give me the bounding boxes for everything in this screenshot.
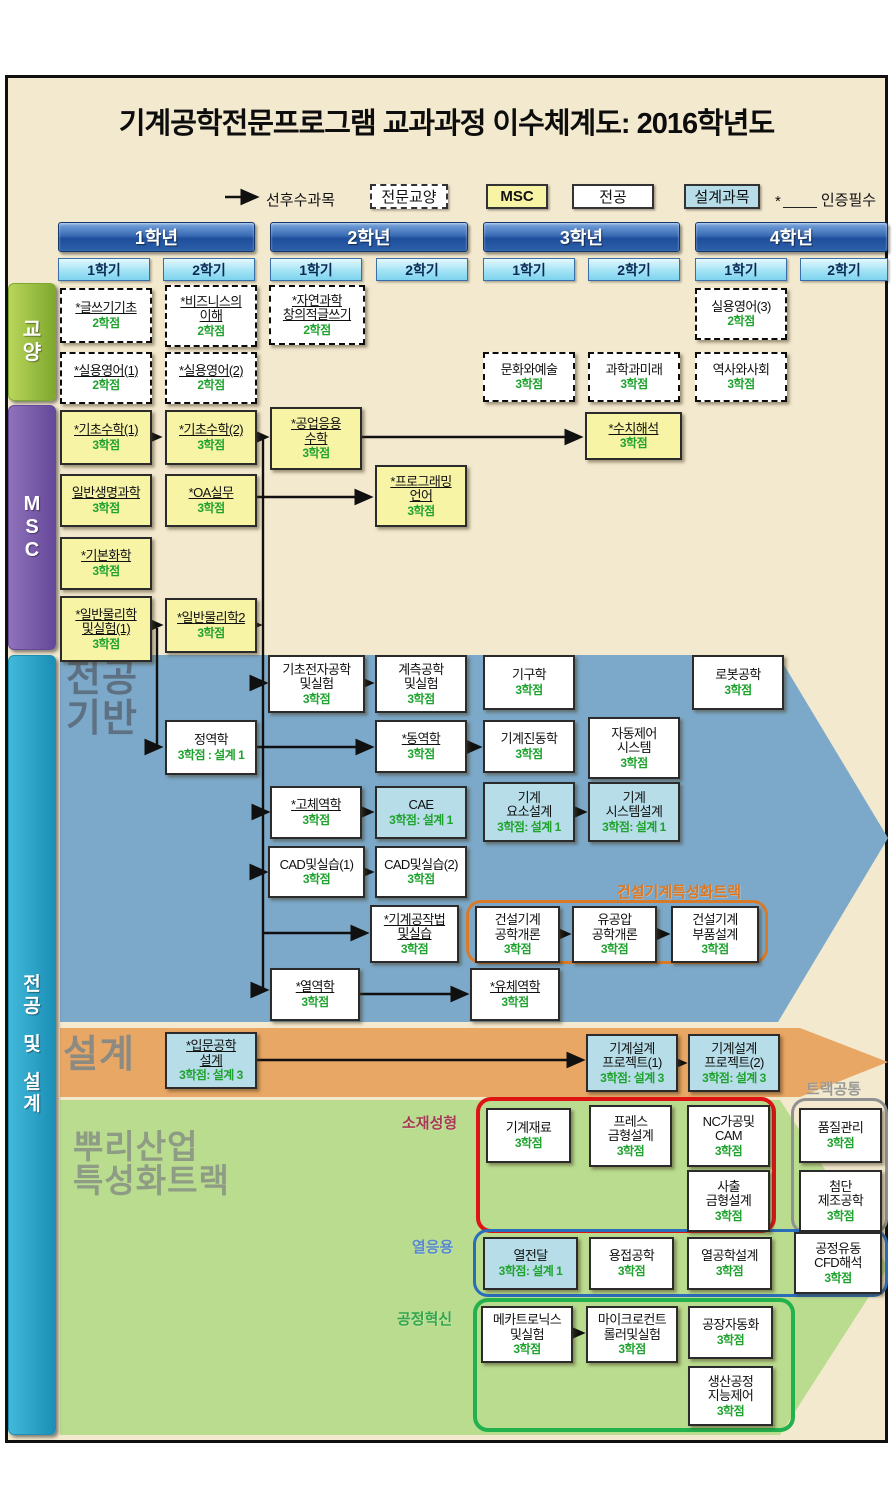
course-credit: 3학점 [620,378,647,391]
course-box: *일반물리학23학점 [165,598,257,653]
sidebar-char: 전 [23,974,40,996]
course-credit: 3학점: 설계 1 [499,1265,563,1278]
course-box: 문화와예술3학점 [483,352,575,402]
course-box: *비즈니스의 이해2학점 [165,285,257,347]
star-symbol: * [775,193,781,210]
course-credit: 3학점 [92,565,119,578]
course-title: 역사와사회 [713,363,770,378]
course-credit: 3학점 [701,943,728,956]
course-box: 기구학3학점 [483,655,575,710]
course-title: *기계공작법 및실습 [384,913,445,942]
course-box: *고체역학3학점 [270,786,362,839]
legend-required: *인증필수 [775,189,876,210]
course-credit: 3학점 [303,693,330,706]
track-label: 열응용 [412,1236,453,1257]
course-credit: 3학점 [620,437,647,450]
course-title: 용접공학 [609,1249,654,1264]
course-credit: 2학점 [197,379,224,392]
course-box: 건설기계 공학개론3학점 [475,906,560,963]
course-title: 일반생명과학 [72,486,140,501]
course-credit: 2학점 [197,325,224,338]
course-credit: 3학점 [515,378,542,391]
course-box: 공장자동화3학점 [688,1306,773,1359]
course-box: *기계공작법 및실습3학점 [370,905,459,963]
course-title: *공업응용 수학 [291,417,341,446]
course-title: *수치해석 [609,422,659,437]
course-box: 기계 요소설계3학점: 설계 1 [483,782,575,842]
course-title: 로봇공학 [715,668,760,683]
legend-box-design: 설계과목 [684,184,760,209]
course-credit: 3학점 [724,684,751,697]
course-box: 마이크로컨트 롤러및실험3학점 [586,1306,678,1363]
course-title: 품질관리 [818,1121,863,1136]
course-title: 유공압 공학개론 [592,913,637,942]
course-title: 공정유동 CFD해석 [814,1242,862,1271]
track-label: 공정혁신 [397,1308,452,1329]
course-credit: 3학점 [197,627,224,640]
course-credit: 3학점 [407,693,434,706]
course-credit: 2학점 [727,315,754,328]
course-title: 과학과미래 [606,363,663,378]
semester-header: 2학기 [163,258,255,281]
course-box: 유공압 공학개론3학점 [572,906,657,963]
course-box: *동역학3학점 [375,720,467,773]
course-credit: 3학점 [601,943,628,956]
course-credit: 3학점: 설계 3 [179,1069,243,1082]
course-title: CAD및실습(1) [280,858,354,873]
course-title: *자연과학 창의적글쓰기 [283,294,351,323]
course-box: 첨단 제조공학3학점 [799,1170,882,1232]
sidebar-char: M [24,493,41,516]
underline-mark [783,194,817,208]
course-box: 프레스 금형설계3학점 [589,1105,672,1167]
course-title: CAD및실습(2) [384,858,458,873]
year-header-3: 3학년 [483,222,680,252]
course-box: *일반물리학 및실험(1)3학점 [60,596,152,662]
course-title: *유체역학 [490,980,540,995]
course-credit: 3학점: 설계 1 [389,814,453,827]
semester-header: 2학기 [588,258,680,281]
course-box: 생산공정 지능제어3학점 [688,1366,773,1426]
course-box: 용접공학3학점 [589,1237,674,1290]
course-box: *공업응용 수학3학점 [270,407,362,470]
course-credit: 3학점 [515,684,542,697]
course-title: *프로그래밍 언어 [390,475,451,504]
course-box: 자동제어 시스템3학점 [588,717,680,779]
course-box: *프로그래밍 언어3학점 [375,465,467,527]
course-box: CAD및실습(2)3학점 [375,846,467,898]
course-title: NC가공및 CAM [703,1115,755,1144]
course-box: 메카트로닉스 및실험3학점 [481,1306,573,1363]
sidebar-char: S [25,516,38,539]
track-label: 트랙공통 [806,1078,861,1099]
course-credit: 3학점 [407,873,434,886]
semester-header: 1학기 [270,258,362,281]
course-credit: 3학점 [92,502,119,515]
semester-header: 1학기 [695,258,787,281]
course-title: 기계 요소설계 [506,791,551,820]
course-credit: 3학점 [515,1137,542,1150]
course-title: 첨단 제조공학 [818,1180,863,1209]
sidebar-char: 설 [23,1072,40,1094]
course-credit: 3학점: 설계 1 [497,821,561,834]
year-header-1: 1학년 [58,222,255,252]
legend-arrow-label: 선후수과목 [266,189,335,210]
course-credit: 3학점 [407,748,434,761]
course-title: *기초수학(1) [74,423,138,438]
course-credit: 3학점 [620,757,647,770]
course-credit: 3학점 [401,943,428,956]
track-label: 소재성형 [402,1112,457,1133]
course-box: *수치해석3학점 [585,412,682,460]
course-title: 생산공정 지능제어 [708,1375,753,1404]
course-box: *유체역학3학점 [470,968,560,1021]
course-title: 메카트로닉스 및실험 [493,1313,561,1342]
course-title: 기계설계 프로젝트(1) [602,1042,662,1071]
course-title: 열공학설계 [701,1249,758,1264]
course-credit: 3학점 [824,1272,851,1285]
course-title: 문화와예술 [501,363,558,378]
course-box: 공정유동 CFD해석3학점 [794,1232,882,1294]
track-label: 건설기계특성화트랙 [617,881,741,902]
course-credit: 3학점: 설계 1 [602,821,666,834]
course-credit: 3학점 [501,996,528,1009]
sidebar-ge: 교양 [8,283,56,401]
course-credit: 3학점 [513,1343,540,1356]
course-title: 실용영어(3) [711,300,771,315]
course-title: 기계 시스템설계 [606,791,663,820]
course-box: *실용영어(1)2학점 [60,352,152,404]
course-box: 로봇공학3학점 [692,655,784,710]
course-title: *실용영어(2) [179,364,243,379]
sidebar-char: 공 [23,996,40,1018]
course-title: 기초전자공학 및실험 [282,663,350,692]
course-title: 건설기계 부품설계 [692,913,737,942]
course-credit: 3학점 : 설계 1 [178,749,245,762]
course-title: 사출 금형설계 [706,1180,751,1209]
course-box: 역사와사회3학점 [695,352,787,402]
course-box: 품질관리3학점 [799,1108,882,1163]
course-title: *동역학 [402,732,441,747]
course-credit: 3학점 [618,1343,645,1356]
course-box: *자연과학 창의적글쓰기2학점 [269,285,365,345]
course-box: 기계 시스템설계3학점: 설계 1 [588,782,680,842]
course-title: 공장자동화 [702,1318,759,1333]
course-credit: 3학점 [504,943,531,956]
course-box: 기계설계 프로젝트(2)3학점: 설계 3 [688,1034,780,1092]
course-credit: 3학점 [827,1137,854,1150]
course-box: CAD및실습(1)3학점 [268,846,365,898]
course-credit: 3학점 [715,1210,742,1223]
course-title: *입문공학 설계 [186,1039,236,1068]
course-credit: 3학점 [715,1145,742,1158]
course-title: *OA실무 [189,486,234,501]
course-title: 기계설계 프로젝트(2) [704,1042,764,1071]
course-box: *글쓰기기초2학점 [60,288,152,343]
course-box: *기본화학3학점 [60,537,152,590]
sidebar-char: C [25,539,39,562]
course-title: 기구학 [512,668,546,683]
course-credit: 3학점: 설계 3 [702,1072,766,1085]
course-title: 정역학 [194,733,228,748]
course-box: 기계재료3학점 [486,1108,571,1163]
course-box: 사출 금형설계3학점 [687,1170,770,1232]
course-box: *OA실무3학점 [165,474,257,527]
course-credit: 3학점 [407,505,434,518]
course-credit: 3학점 [618,1265,645,1278]
sidebar-char: 계 [23,1094,40,1116]
semester-header: 1학기 [483,258,575,281]
course-credit: 3학점: 설계 3 [600,1072,664,1085]
required-label: 인증필수 [821,189,876,210]
course-title: *기초수학(2) [179,423,243,438]
course-title: 기계재료 [506,1121,551,1136]
sidebar-char: 및 [23,1034,40,1056]
course-title: *글쓰기기초 [75,301,136,316]
course-title: 열전달 [513,1249,547,1264]
course-title: 기계진동학 [501,732,558,747]
legend-box-ge: 전문교양 [370,184,448,209]
course-box: *기초수학(1)3학점 [60,410,152,465]
course-box: 과학과미래3학점 [588,352,680,402]
course-credit: 3학점 [617,1145,644,1158]
course-title: *고체역학 [291,798,341,813]
course-credit: 2학점 [92,379,119,392]
course-box: 계측공학 및실험3학점 [375,655,467,713]
curriculum-diagram: 기계공학전문프로그램 교과과정 이수체계도: 2016학년도 선후수과목 전문교… [0,0,893,1512]
course-box: *열역학3학점 [270,968,360,1021]
course-box: *기초수학(2)3학점 [165,410,257,465]
course-credit: 3학점 [92,638,119,651]
course-credit: 2학점 [303,324,330,337]
course-box: 건설기계 부품설계3학점 [671,906,759,963]
course-credit: 3학점 [717,1334,744,1347]
course-credit: 3학점 [301,996,328,1009]
sidebar-char: 양 [23,342,41,365]
course-box: NC가공및 CAM3학점 [687,1105,770,1167]
course-title: *실용영어(1) [74,364,138,379]
page-title: 기계공학전문프로그램 교과과정 이수체계도: 2016학년도 [0,100,893,142]
course-credit: 3학점 [515,748,542,761]
course-credit: 3학점 [197,439,224,452]
course-credit: 3학점 [717,1405,744,1418]
course-box: CAE3학점: 설계 1 [375,786,467,839]
course-title: 계측공학 및실험 [398,663,443,692]
course-box: 기계진동학3학점 [483,720,575,773]
course-title: CAE [409,798,434,813]
sidebar-msc: MSC [8,405,56,650]
course-box: 기초전자공학 및실험3학점 [268,655,365,713]
course-title: *일반물리학2 [177,611,245,626]
course-credit: 3학점 [92,439,119,452]
course-title: *일반물리학 및실험(1) [75,608,136,637]
course-credit: 3학점 [197,502,224,515]
course-credit: 3학점 [302,814,329,827]
course-credit: 3학점 [827,1210,854,1223]
course-title: 자동제어 시스템 [611,727,656,756]
year-header-4: 4학년 [695,222,888,252]
semester-header: 2학기 [376,258,468,281]
course-box: *입문공학 설계3학점: 설계 3 [165,1032,257,1089]
course-credit: 3학점 [716,1265,743,1278]
course-title: 프레스 금형설계 [608,1115,653,1144]
semester-header: 2학기 [800,258,888,281]
course-credit: 2학점 [92,317,119,330]
legend-box-msc: MSC [486,184,548,209]
sidebar-major: 전공및설계 [8,655,56,1435]
sidebar-char: 교 [23,319,41,342]
course-credit: 3학점 [302,447,329,460]
course-title: 마이크로컨트 롤러및실험 [598,1313,666,1342]
course-box: 열전달3학점: 설계 1 [483,1237,578,1290]
year-header-2: 2학년 [270,222,468,252]
course-box: 일반생명과학3학점 [60,474,152,527]
course-box: 정역학3학점 : 설계 1 [165,720,257,775]
course-box: 기계설계 프로젝트(1)3학점: 설계 3 [586,1034,678,1092]
course-title: 건설기계 공학개론 [495,913,540,942]
course-credit: 3학점 [303,873,330,886]
course-box: *실용영어(2)2학점 [165,352,257,404]
course-title: *기본화학 [81,549,131,564]
course-box: 실용영어(3)2학점 [695,288,787,340]
legend-box-major: 전공 [572,184,654,209]
semester-header: 1학기 [58,258,150,281]
course-credit: 3학점 [727,378,754,391]
course-title: *열역학 [296,980,335,995]
course-box: 열공학설계3학점 [687,1237,772,1290]
course-title: *비즈니스의 이해 [180,295,241,324]
